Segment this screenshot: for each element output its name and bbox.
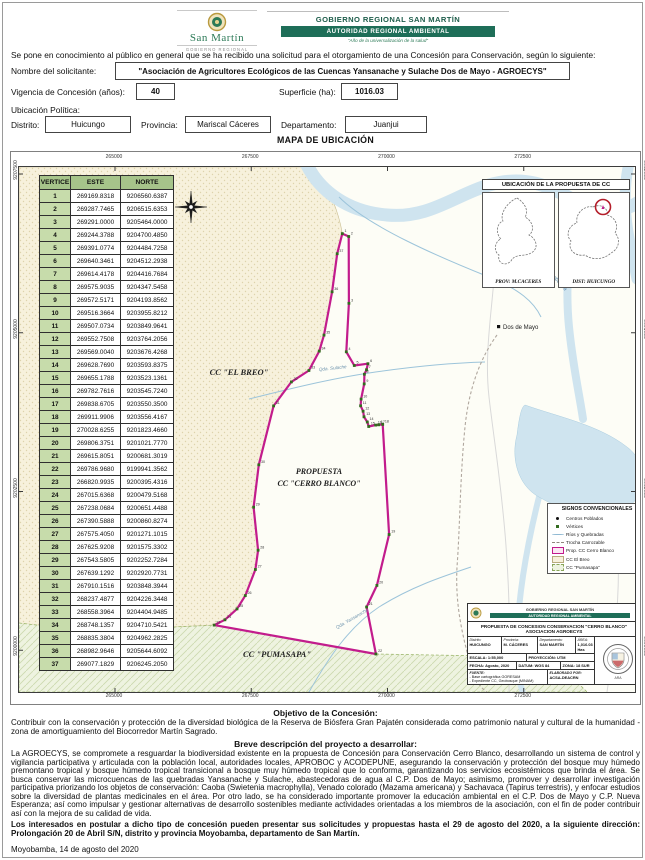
vertex-table-row: 12269552.75089203764.2056 xyxy=(40,333,174,346)
vertex-table-row: 26267390.58889200860.8274 xyxy=(40,515,174,528)
x-tick-label: 272500 xyxy=(506,154,540,160)
vertex-marker xyxy=(359,404,362,407)
vertex-marker xyxy=(244,594,247,597)
vertex-norte: 9199941.3562 xyxy=(121,463,174,476)
vigencia-value-box: 40 xyxy=(136,83,175,100)
vertex-number: 35 xyxy=(40,632,71,645)
vertex-table-row: 32268237.48779204226.3448 xyxy=(40,593,174,606)
vertex-table-row: 10269516.36649203955.8212 xyxy=(40,307,174,320)
vertex-number: 34 xyxy=(40,619,71,632)
vertex-number: 28 xyxy=(40,541,71,554)
inset-caption-distrito: DIST: HUICUNGO xyxy=(559,279,630,285)
label-cc-el-breo: CC "EL BREO" xyxy=(210,367,269,377)
vertex-number: 2 xyxy=(40,203,71,216)
vertex-norte: 9203848.3944 xyxy=(121,580,174,593)
vertex-este: 268237.4877 xyxy=(71,593,121,606)
vertex-marker xyxy=(363,415,366,418)
vertex-table-row: 5269391.07749204484.7258 xyxy=(40,242,174,255)
vertex-norte: 9200479.5168 xyxy=(121,489,174,502)
vertex-marker xyxy=(257,463,260,466)
vertex-number: 7 xyxy=(40,268,71,281)
vertex-norte: 9204404.9485 xyxy=(121,606,174,619)
vertex-number: 37 xyxy=(40,658,71,671)
legend-item-label: CC El Breo xyxy=(566,557,589,562)
vertex-este: 268748.1357 xyxy=(71,619,121,632)
vertex-number: 29 xyxy=(40,554,71,567)
vertex-number-label: 11 xyxy=(363,401,367,405)
map-title: MAPA DE UBICACIÓN xyxy=(3,135,645,145)
vertex-number-label: 4 xyxy=(349,347,351,351)
vertex-marker xyxy=(388,533,391,536)
vertex-table-row: 4269244.37889204700.4850 xyxy=(40,229,174,242)
vertex-este: 269640.3461 xyxy=(71,255,121,268)
tb-fecha: FECHA: Agosto, 2020 xyxy=(470,663,515,668)
logo-rule-top xyxy=(177,10,257,11)
vertex-marker xyxy=(353,364,356,367)
vertex-number: 33 xyxy=(40,606,71,619)
inset-title: UBICACIÓN DE LA PROPUESTA DE CC xyxy=(482,179,630,190)
vertex-este: 269782.7616 xyxy=(71,385,121,398)
vertex-norte: 9203849.9641 xyxy=(121,320,174,333)
legend-item-label: Trocha Carrozable xyxy=(566,540,605,545)
vertex-este: 268835.3804 xyxy=(71,632,121,645)
vertex-norte: 9203676.4268 xyxy=(121,346,174,359)
vertex-number: 13 xyxy=(40,346,71,359)
legend-item-label: Prop. CC Cerro Blanco xyxy=(566,548,614,553)
x-tick-label: 265000 xyxy=(97,693,131,699)
tb-escala: ESCALA: 1:55,000 xyxy=(470,655,525,660)
vertex-number: 30 xyxy=(40,567,71,580)
vertex-marker xyxy=(308,369,311,372)
vertex-norte: 9206560.6387 xyxy=(121,190,174,203)
vertex-marker xyxy=(213,624,216,627)
vertex-marker xyxy=(254,568,257,571)
legend-item-label: CC "Pumasapa" xyxy=(566,565,600,570)
departamento-label: Departamento: xyxy=(281,120,336,130)
vertex-number: 22 xyxy=(40,463,71,476)
objetivo-body: Contribuir con la conservación y protecc… xyxy=(11,719,640,736)
vertex-marker xyxy=(318,350,321,353)
vertex-norte: 9202920.7731 xyxy=(121,567,174,580)
vertex-number-label: 1 xyxy=(345,229,347,233)
vertex-number-label: 3 xyxy=(351,299,353,303)
logo-rule-bottom xyxy=(177,45,257,46)
vertex-marker xyxy=(367,425,370,428)
vertex-table-row: 3269291.00009205464.0000 xyxy=(40,216,174,229)
inset-caption-provincia: PROV: M.CACERES xyxy=(483,279,554,285)
vertex-marker xyxy=(341,232,344,235)
vertex-table-row: 6269640.34619204512.2938 xyxy=(40,255,174,268)
vertex-norte: 9206245.2050 xyxy=(121,658,174,671)
vertex-marker xyxy=(290,381,293,384)
legend-symbol-track xyxy=(552,542,564,543)
vertex-norte: 9200395.4316 xyxy=(121,476,174,489)
tb-distrito-value: HUICUNGO xyxy=(470,642,500,647)
document-sheet: San Martín GOBIERNO REGIONAL GOBIERNO RE… xyxy=(2,2,643,858)
vertex-number-label: 28 xyxy=(260,545,264,549)
vertex-este: 269615.8051 xyxy=(71,450,121,463)
x-tick-label: 272500 xyxy=(506,693,540,699)
vertex-number-label: 23 xyxy=(216,620,220,624)
legend-symbol-puma xyxy=(552,564,564,571)
vertex-table-row: 19270028.62559201823.4660 xyxy=(40,424,174,437)
vigencia-label: Vigencia de Concesión (años): xyxy=(11,87,125,97)
vertex-marker xyxy=(345,350,348,353)
vertex-number-label: 2 xyxy=(351,232,353,236)
vertex-norte: 9204700.4850 xyxy=(121,229,174,242)
aviso-text: Los interesados en postular a dicho tipo… xyxy=(11,821,640,838)
title-block-org2: AUTORIDAD REGIONAL AMBIENTAL xyxy=(490,613,630,618)
official-seal-icon: ARA xyxy=(600,640,636,682)
vertex-number: 26 xyxy=(40,515,71,528)
label-dos-de-mayo: Dos de Mayo xyxy=(503,325,539,331)
title-block-crest-icon xyxy=(470,607,482,619)
vertex-este: 269552.7508 xyxy=(71,333,121,346)
descripcion-body: La AGROECYS, se compromete a resguardar … xyxy=(11,750,640,818)
vertex-number: 3 xyxy=(40,216,71,229)
vertex-table-row: 8269575.90359204347.5458 xyxy=(40,281,174,294)
vertex-norte: 9205644.6092 xyxy=(121,645,174,658)
vertex-este: 269291.0000 xyxy=(71,216,121,229)
org-name: GOBIERNO REGIONAL SAN MARTÍN xyxy=(267,15,509,24)
vertex-table-row: 23266820.99359200395.4316 xyxy=(40,476,174,489)
vertex-table-row: 36268982.96469205644.6092 xyxy=(40,645,174,658)
label-propuesta-2: CC "CERRO BLANCO" xyxy=(277,479,360,488)
legend-symbol-river xyxy=(552,534,564,535)
town-marker-dos-de-mayo xyxy=(497,325,500,328)
superficie-value-box: 1016.03 xyxy=(341,83,398,100)
map-title-block: GOBIERNO REGIONAL SAN MARTÍN AUTORIDAD R… xyxy=(467,603,636,685)
vertex-marker xyxy=(252,506,255,509)
legend-item-label: Vértices xyxy=(566,524,583,529)
legend-item-label: Ríos y Quebradas xyxy=(566,532,604,537)
vertex-table-row: 11269507.07349203849.9641 xyxy=(40,320,174,333)
vertex-este: 269655.1788 xyxy=(71,372,121,385)
vertex-number: 24 xyxy=(40,489,71,502)
vertex-number-label: 13 xyxy=(366,412,370,416)
descripcion-heading: Breve descripción del proyecto a desarro… xyxy=(11,739,640,749)
vertex-este: 267543.5805 xyxy=(71,554,121,567)
vertex-table-row: 20269806.37519201021.7770 xyxy=(40,437,174,450)
title-block-header: GOBIERNO REGIONAL SAN MARTÍN AUTORIDAD R… xyxy=(468,604,636,622)
vertex-number: 15 xyxy=(40,372,71,385)
vertex-marker xyxy=(224,618,227,621)
vertex-norte: 9201021.7770 xyxy=(121,437,174,450)
vertex-norte: 9204512.2938 xyxy=(121,255,174,268)
map-outer-box: 265000267500270000272500 265000267500270… xyxy=(10,151,641,705)
vertex-number-label: 10 xyxy=(363,394,367,398)
svg-text:ARA: ARA xyxy=(614,676,622,680)
title-block-org1: GOBIERNO REGIONAL SAN MARTÍN xyxy=(482,607,636,612)
legend-symbol-prop xyxy=(552,547,564,554)
vertex-number: 8 xyxy=(40,281,71,294)
vertex-number: 36 xyxy=(40,645,71,658)
vertex-number: 27 xyxy=(40,528,71,541)
vertex-number-label: 35 xyxy=(326,330,330,334)
vertex-norte: 9204193.8562 xyxy=(121,294,174,307)
map-frame: 1234567891011121314151617181920212223242… xyxy=(18,166,636,693)
vertex-number: 19 xyxy=(40,424,71,437)
distrito-label: Distrito: xyxy=(11,120,39,130)
vertex-norte: 9203955.8212 xyxy=(121,307,174,320)
vertex-este: 269786.9680 xyxy=(71,463,121,476)
vertex-norte: 9203556.4167 xyxy=(121,411,174,424)
x-tick-label: 270000 xyxy=(370,154,404,160)
vertex-este: 269575.9035 xyxy=(71,281,121,294)
vertex-norte: 9201271.1015 xyxy=(121,528,174,541)
ubicacion-label: Ubicación Política: xyxy=(11,105,80,115)
inset-location-map: UBICACIÓN DE LA PROPUESTA DE CC PROV: M.… xyxy=(482,179,630,288)
vertex-number: 4 xyxy=(40,229,71,242)
vertex-table-header-este: ESTE xyxy=(71,176,121,190)
vertex-este: 267390.5888 xyxy=(71,515,121,528)
vertex-table-header-vertice: VERTICE xyxy=(40,176,71,190)
vertex-marker xyxy=(347,235,350,238)
vertex-este: 267015.6368 xyxy=(71,489,121,502)
vertex-table-row: 37269077.18299206245.2050 xyxy=(40,658,174,671)
vertex-norte: 9200651.4488 xyxy=(121,502,174,515)
vertex-number-label: 34 xyxy=(322,346,326,350)
vertex-norte: 9201823.4660 xyxy=(121,424,174,437)
vertex-number: 16 xyxy=(40,385,71,398)
vertex-table-row: 9269572.51719204193.8562 xyxy=(40,294,174,307)
vertex-table-row: 27267575.40509201271.1015 xyxy=(40,528,174,541)
vertex-este: 269391.0774 xyxy=(71,242,121,255)
vertex-table-row: 14269628.76909203593.8375 xyxy=(40,359,174,372)
vertex-este: 268982.9646 xyxy=(71,645,121,658)
vertex-este: 269169.8318 xyxy=(71,190,121,203)
vertex-number: 12 xyxy=(40,333,71,346)
vertex-marker xyxy=(331,290,334,293)
logo-name: San Martín xyxy=(173,32,261,44)
vertex-number-label: 21 xyxy=(369,602,373,606)
vertex-este: 269838.6705 xyxy=(71,398,121,411)
vertex-table-row: 35268835.38049204962.2825 xyxy=(40,632,174,645)
vertex-este: 266820.9935 xyxy=(71,476,121,489)
vertex-este: 269244.3788 xyxy=(71,229,121,242)
vertex-number: 9 xyxy=(40,294,71,307)
vertex-number-label: 7 xyxy=(369,365,371,369)
vertex-este: 269614.4178 xyxy=(71,268,121,281)
vertex-este: 269911.9906 xyxy=(71,411,121,424)
provincia-label: Provincia: xyxy=(141,120,178,130)
vertex-number-label: 18 xyxy=(385,420,389,424)
vertex-number-label: 12 xyxy=(365,406,369,410)
vertex-table-row: 30267639.12929202920.7731 xyxy=(40,567,174,580)
vertex-este: 267910.1516 xyxy=(71,580,121,593)
legend-title: SIGNOS CONVENCIONALES xyxy=(551,506,636,512)
vertex-norte: 9204226.3448 xyxy=(121,593,174,606)
vertex-number-label: 5 xyxy=(357,361,359,365)
vertex-table-row: 25267238.06849200651.4488 xyxy=(40,502,174,515)
legend-item: CC "Pumasapa" xyxy=(551,563,636,571)
vertex-este: 267238.0684 xyxy=(71,502,121,515)
org-banner: AUTORIDAD REGIONAL AMBIENTAL xyxy=(281,26,495,37)
tb-provincia-value: M. CÁCERES xyxy=(504,642,536,647)
solicitante-value-box: "Asociación de Agricultores Ecológicos d… xyxy=(115,62,570,80)
vertex-norte: 9204962.2825 xyxy=(121,632,174,645)
vertex-norte: 9203545.7240 xyxy=(121,385,174,398)
vertex-este: 269077.1829 xyxy=(71,658,121,671)
vertex-table-row: 28267625.92089201575.3302 xyxy=(40,541,174,554)
objetivo-heading: Objetivo de la Concesión: xyxy=(11,708,640,718)
vertex-norte: 9205464.0000 xyxy=(121,216,174,229)
label-cc-pumasapa: CC "PUMASAPA" xyxy=(243,649,311,659)
vertex-marker xyxy=(376,584,379,587)
distrito-outline-map xyxy=(559,193,628,285)
vertex-number: 25 xyxy=(40,502,71,515)
vertex-norte: 9204347.5458 xyxy=(121,281,174,294)
vertex-number: 1 xyxy=(40,190,71,203)
vertex-norte: 9203764.2056 xyxy=(121,333,174,346)
x-tick-label: 270000 xyxy=(370,693,404,699)
vertex-norte: 9203550.3500 xyxy=(121,398,174,411)
vertex-number: 10 xyxy=(40,307,71,320)
label-propuesta-1: PROPUESTA xyxy=(296,467,343,476)
vertex-este: 267639.1292 xyxy=(71,567,121,580)
vertex-number-label: 27 xyxy=(258,565,262,569)
vertex-number: 11 xyxy=(40,320,71,333)
vertex-number: 23 xyxy=(40,476,71,489)
vertex-norte: 9204484.7258 xyxy=(121,242,174,255)
vertex-number-label: 8 xyxy=(367,369,369,373)
vertex-table-row: 2269287.74659206515.6353 xyxy=(40,203,174,216)
vertex-number-label: 14 xyxy=(370,417,374,421)
inset-panel-distrito: DIST: HUICUNGO xyxy=(558,192,631,288)
vertex-table-row: 15269655.17889203523.1361 xyxy=(40,372,174,385)
header-right-org: GOBIERNO REGIONAL SAN MARTÍN AUTORIDAD R… xyxy=(267,11,509,43)
provincia-value-box: Mariscal Cáceres xyxy=(185,116,271,133)
legend-item-label: Centros Poblados xyxy=(566,516,603,521)
vertex-table-row: 16269782.76169203545.7240 xyxy=(40,385,174,398)
vertex-number: 18 xyxy=(40,411,71,424)
vertex-este: 269287.7465 xyxy=(71,203,121,216)
tb-area-value: 1,016.03 Has xyxy=(578,642,593,652)
vertex-este: 269628.7690 xyxy=(71,359,121,372)
vertex-table-row: 31267910.15169203848.3944 xyxy=(40,580,174,593)
x-tick-label: 265000 xyxy=(97,154,131,160)
legend-symbol-dot xyxy=(556,517,559,520)
vertex-table: VERTICE ESTE NORTE 1269169.83189206560.6… xyxy=(39,175,174,671)
vertex-number-label: 36 xyxy=(334,287,338,291)
vertex-marker xyxy=(272,405,275,408)
vertex-este: 269569.0040 xyxy=(71,346,121,359)
vertex-norte: 9200860.8274 xyxy=(121,515,174,528)
vertex-number-label: 29 xyxy=(256,502,260,506)
vertex-number-label: 22 xyxy=(378,649,382,653)
departamento-value-box: Juanjui xyxy=(345,116,427,133)
legend-item: Prop. CC Cerro Blanco xyxy=(551,547,636,555)
vertex-number-label: 37 xyxy=(339,249,343,253)
tb-zona: ZONA: 18 SUR xyxy=(563,663,593,668)
vertex-number: 14 xyxy=(40,359,71,372)
header-left-logo: San Martín GOBIERNO REGIONAL xyxy=(173,9,261,52)
vertex-number-label: 30 xyxy=(261,460,265,464)
legend-item: Centros Poblados xyxy=(551,514,636,522)
vertex-norte: 9202252.7284 xyxy=(121,554,174,567)
vertex-table-row: 18269911.99069203556.4167 xyxy=(40,411,174,424)
vertex-number-label: 20 xyxy=(379,581,383,585)
tb-proyeccion: PROYECCIÓN: UTM xyxy=(529,655,593,660)
legend-symbol-vert xyxy=(556,525,559,528)
vertex-este: 267625.9208 xyxy=(71,541,121,554)
document-date: Moyobamba, 14 de agosto del 2020 xyxy=(11,845,640,854)
vertex-number-label: 25 xyxy=(239,604,243,608)
tb-fuente-2: - Expediente CC, Geobosque (MINAM) xyxy=(470,679,546,683)
x-tick-label: 267500 xyxy=(233,154,267,160)
vertex-marker xyxy=(348,302,351,305)
vertex-marker xyxy=(336,252,339,255)
vertex-number-label: 31 xyxy=(276,401,280,405)
vertex-norte: 9203593.8375 xyxy=(121,359,174,372)
vertex-table-row: 21269615.80519200681.3019 xyxy=(40,450,174,463)
vertex-number-label: 26 xyxy=(248,591,252,595)
vertex-marker xyxy=(362,410,365,413)
legend-item: Trocha Carrozable xyxy=(551,539,636,547)
vertex-number-label: 9 xyxy=(366,379,368,383)
vertex-marker xyxy=(363,373,366,376)
vertex-table-row: 29267543.58059202252.7284 xyxy=(40,554,174,567)
tb-departamento-value: SAN MARTÍN xyxy=(540,642,574,647)
vertex-marker xyxy=(366,421,369,424)
vertex-number-label: 24 xyxy=(227,615,231,619)
vertex-este: 270028.6255 xyxy=(71,424,121,437)
vertex-marker xyxy=(381,423,384,426)
legend-symbol-breo xyxy=(552,556,564,563)
vertex-number: 5 xyxy=(40,242,71,255)
vertex-marker xyxy=(257,549,260,552)
legend-box: SIGNOS CONVENCIONALES Centros PobladosVé… xyxy=(547,503,636,574)
title-block-title: PROPUESTA DE CONCESION CONSERVACION "CER… xyxy=(468,622,636,637)
vertex-number-label: 19 xyxy=(391,530,395,534)
vertex-este: 267575.4050 xyxy=(71,528,121,541)
tb-elaborado-value: ACSA-DEACRN xyxy=(550,675,593,680)
vertex-marker xyxy=(375,653,378,656)
san-martin-crest-icon xyxy=(207,12,227,32)
vertex-norte: 9204416.7684 xyxy=(121,268,174,281)
vertex-norte: 9201575.3302 xyxy=(121,541,174,554)
vertex-table-row: 7269614.41789204416.7684 xyxy=(40,268,174,281)
vertex-table-row: 13269569.00409203676.4268 xyxy=(40,346,174,359)
intro-text: Se pone en conocimiento al público en ge… xyxy=(11,50,640,60)
vertex-number: 32 xyxy=(40,593,71,606)
vertex-number: 17 xyxy=(40,398,71,411)
vertex-number: 20 xyxy=(40,437,71,450)
inset-panel-provincia: PROV: M.CACERES xyxy=(482,192,555,288)
vertex-table-row: 22269786.96809199941.3562 xyxy=(40,463,174,476)
vertex-marker xyxy=(374,424,377,427)
vertex-number: 21 xyxy=(40,450,71,463)
superficie-label: Superficie (ha): xyxy=(279,87,336,97)
legend-item: Ríos y Quebradas xyxy=(551,530,636,538)
vertex-marker xyxy=(363,383,366,386)
legend-item: CC El Breo xyxy=(551,555,636,563)
vertex-marker xyxy=(323,334,326,337)
solicitante-label: Nombre del solicitante: xyxy=(11,66,96,76)
vertex-number-label: 6 xyxy=(370,359,372,363)
vertex-este: 268558.3964 xyxy=(71,606,121,619)
vertex-number: 31 xyxy=(40,580,71,593)
vertex-norte: 9204710.5421 xyxy=(121,619,174,632)
vertex-norte: 9203523.1361 xyxy=(121,372,174,385)
tb-datum: DATUM: WGS 84 xyxy=(519,663,559,668)
provincia-outline-map xyxy=(483,193,552,285)
vertex-table-row: 17269838.67059203550.3500 xyxy=(40,398,174,411)
distrito-value-box: Huicungo xyxy=(45,116,131,133)
vertex-table-row: 33268558.39649204404.9485 xyxy=(40,606,174,619)
legend-item: Vértices xyxy=(551,522,636,530)
vertex-este: 269507.0734 xyxy=(71,320,121,333)
